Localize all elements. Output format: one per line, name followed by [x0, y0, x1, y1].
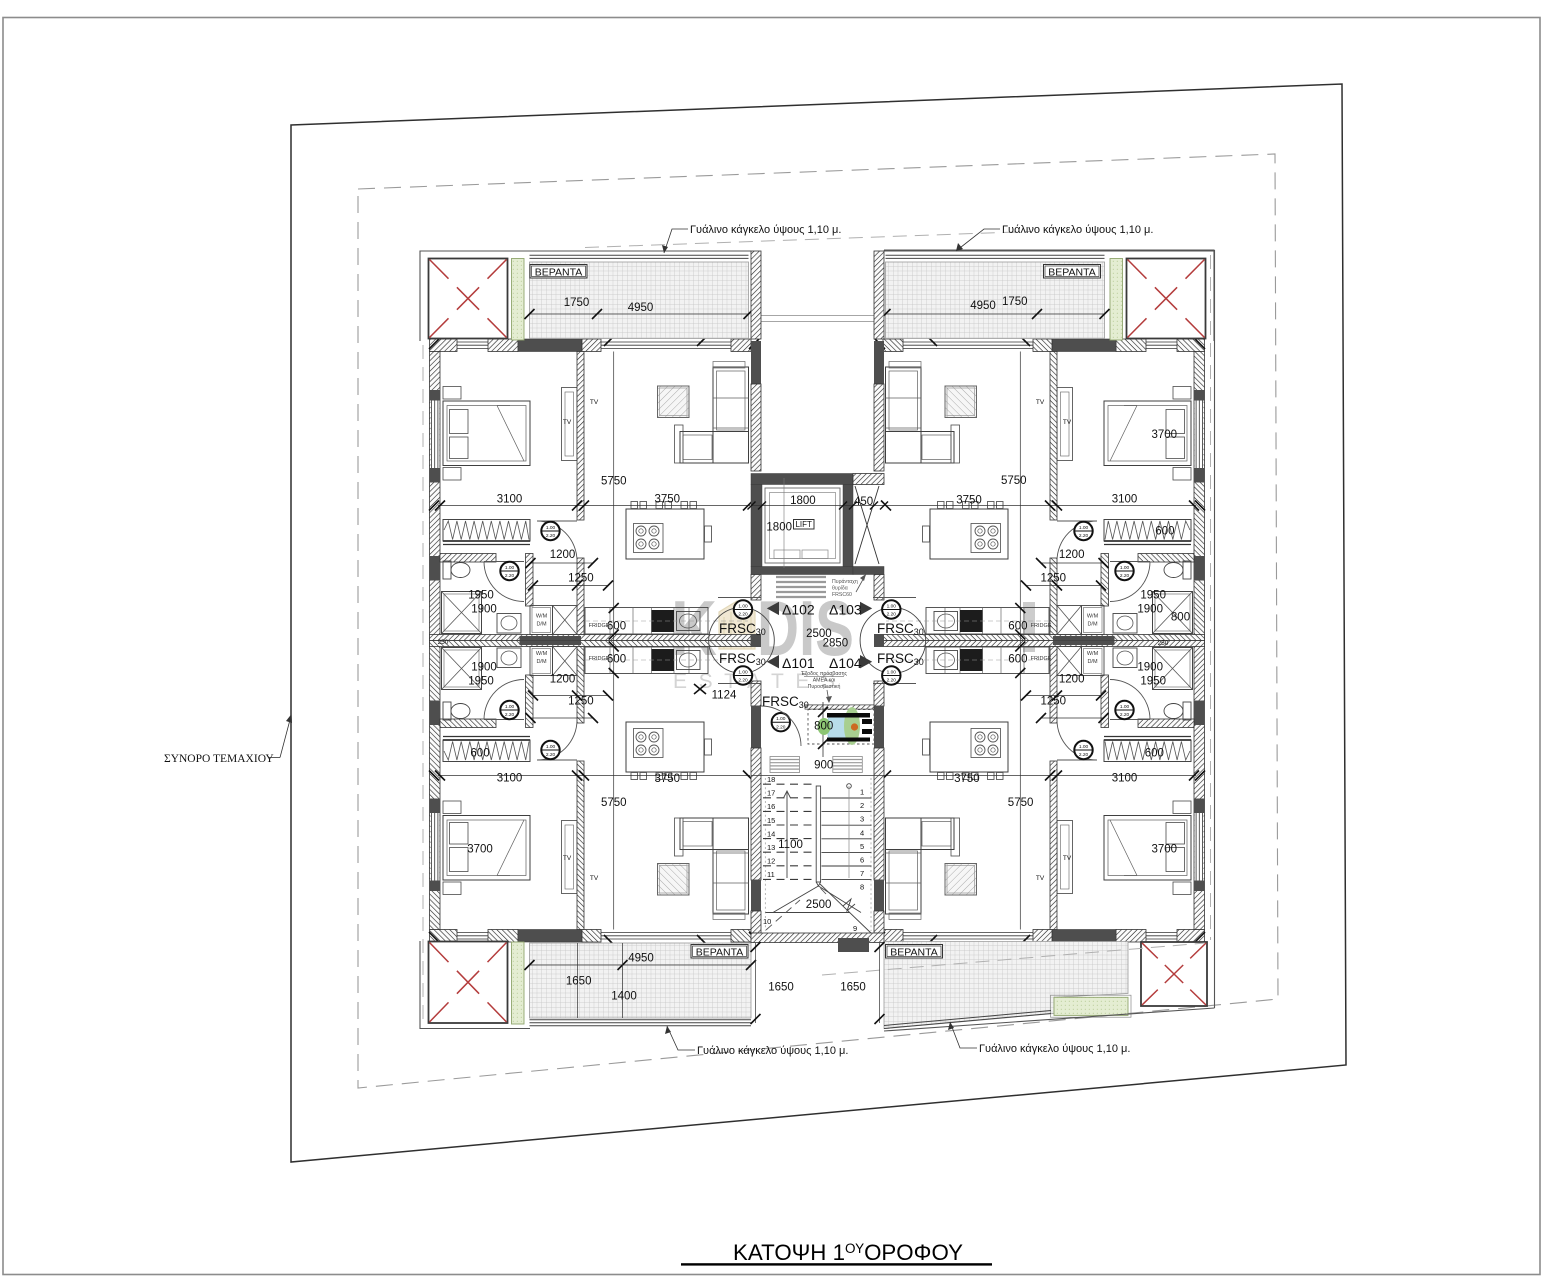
svg-text:3700: 3700: [1152, 429, 1178, 441]
svg-text:1900: 1900: [1137, 662, 1163, 674]
svg-text:2.20: 2.20: [1120, 573, 1130, 579]
svg-text:3100: 3100: [1112, 773, 1138, 785]
svg-text:1250: 1250: [1041, 573, 1067, 585]
svg-text:W/M: W/M: [536, 614, 548, 620]
svg-text:13: 13: [767, 843, 775, 852]
svg-text:4950: 4950: [970, 300, 996, 312]
svg-text:1200: 1200: [1059, 549, 1085, 561]
svg-text:2: 2: [860, 801, 864, 810]
svg-text:FRIDGE: FRIDGE: [589, 656, 610, 662]
svg-text:ΒΕΡΑΝΤΑ: ΒΕΡΑΝΤΑ: [890, 947, 937, 959]
svg-text:2850: 2850: [823, 638, 849, 650]
svg-text:Δ103: Δ103: [829, 602, 862, 618]
svg-text:1200: 1200: [550, 549, 576, 561]
svg-text:W/M: W/M: [1087, 614, 1099, 620]
svg-text:2500: 2500: [806, 899, 832, 911]
svg-text:9: 9: [853, 924, 857, 933]
svg-text:D/M: D/M: [536, 622, 547, 628]
svg-text:600: 600: [1008, 621, 1027, 633]
svg-text:ΒΕΡΑΝΤΑ: ΒΕΡΑΝΤΑ: [1048, 267, 1095, 279]
svg-text:250: 250: [438, 639, 449, 646]
svg-text:2.20: 2.20: [1079, 533, 1089, 539]
svg-text:800: 800: [814, 721, 833, 733]
svg-text:2.20: 2.20: [738, 612, 748, 618]
svg-text:2.20: 2.20: [505, 712, 515, 718]
svg-text:FRIDGE: FRIDGE: [1031, 656, 1052, 662]
svg-text:600: 600: [1008, 654, 1027, 666]
svg-text:TV: TV: [1036, 875, 1045, 882]
svg-text:1950: 1950: [468, 590, 494, 602]
svg-text:2.20: 2.20: [546, 752, 556, 758]
svg-text:5750: 5750: [601, 476, 627, 488]
svg-text:2.20: 2.20: [1079, 752, 1089, 758]
svg-text:16: 16: [767, 802, 775, 811]
svg-text:TV: TV: [1063, 419, 1072, 426]
svg-text:1950: 1950: [1140, 590, 1166, 602]
svg-text:1.00: 1.00: [505, 704, 515, 710]
svg-text:10: 10: [763, 917, 771, 926]
svg-text:Δ101: Δ101: [782, 655, 815, 671]
svg-text:D/M: D/M: [1087, 659, 1098, 665]
svg-text:1750: 1750: [564, 297, 590, 309]
svg-text:4: 4: [860, 828, 864, 837]
svg-text:2.20: 2.20: [1120, 712, 1130, 718]
svg-text:Πυράνταχη: Πυράνταχη: [832, 578, 858, 585]
svg-text:5: 5: [860, 842, 864, 851]
svg-text:4950: 4950: [628, 302, 654, 314]
svg-text:1200: 1200: [1059, 674, 1085, 686]
svg-text:450: 450: [854, 496, 873, 508]
svg-text:TV: TV: [563, 855, 572, 862]
svg-text:1124: 1124: [712, 690, 737, 702]
svg-text:3750: 3750: [655, 773, 681, 785]
svg-text:3700: 3700: [467, 844, 493, 856]
svg-text:800: 800: [1171, 612, 1190, 624]
svg-text:1.00: 1.00: [738, 603, 748, 609]
svg-text:1.00: 1.00: [776, 716, 786, 722]
svg-text:FRIDGE: FRIDGE: [589, 623, 610, 629]
svg-text:1.00: 1.00: [1120, 704, 1130, 710]
svg-text:1800: 1800: [790, 495, 816, 507]
svg-text:14: 14: [767, 829, 775, 838]
svg-text:D/M: D/M: [536, 659, 547, 665]
svg-text:2.20: 2.20: [546, 533, 556, 539]
svg-text:5750: 5750: [601, 797, 627, 809]
svg-text:1250: 1250: [568, 696, 594, 708]
svg-text:Γυάλινο κάγκελο ύψους 1,10 μ.: Γυάλινο κάγκελο ύψους 1,10 μ.: [979, 1043, 1130, 1055]
svg-text:1650: 1650: [566, 976, 592, 988]
svg-text:ΒΕΡΑΝΤΑ: ΒΕΡΑΝΤΑ: [535, 267, 582, 279]
svg-text:2.20: 2.20: [738, 678, 748, 684]
svg-text:Γυάλινο κάγκελο ύψους 1,10 μ.: Γυάλινο κάγκελο ύψους 1,10 μ.: [690, 224, 841, 236]
svg-text:3100: 3100: [497, 773, 523, 785]
svg-text:1.00: 1.00: [887, 669, 897, 675]
svg-text:1: 1: [860, 788, 864, 797]
svg-text:1400: 1400: [611, 991, 637, 1003]
svg-text:TV: TV: [590, 399, 599, 406]
svg-text:2.20: 2.20: [505, 573, 515, 579]
svg-text:3100: 3100: [497, 494, 523, 506]
svg-text:1900: 1900: [471, 604, 497, 616]
svg-text:1200: 1200: [550, 674, 576, 686]
svg-text:1750: 1750: [1002, 296, 1028, 308]
svg-text:18: 18: [767, 775, 775, 784]
svg-text:7: 7: [860, 869, 864, 878]
svg-text:K: K: [671, 584, 717, 672]
svg-text:1950: 1950: [1140, 676, 1166, 688]
svg-text:1900: 1900: [1137, 604, 1163, 616]
svg-text:600: 600: [1145, 748, 1164, 760]
svg-text:5750: 5750: [1001, 475, 1027, 487]
svg-text:1.00: 1.00: [1079, 744, 1089, 750]
svg-text:600: 600: [470, 748, 489, 760]
svg-text:1650: 1650: [840, 982, 866, 994]
svg-text:1100: 1100: [778, 839, 803, 851]
svg-text:D/M: D/M: [1087, 622, 1098, 628]
svg-text:Γυάλινο κάγκελο ύψους 1,10 μ.: Γυάλινο κάγκελο ύψους 1,10 μ.: [697, 1045, 848, 1057]
svg-text:Δ104: Δ104: [829, 655, 862, 671]
svg-text:TV: TV: [590, 875, 599, 882]
svg-text:1.00: 1.00: [1079, 525, 1089, 531]
svg-text:FRSC60: FRSC60: [832, 592, 852, 598]
svg-text:LIFT: LIFT: [795, 520, 812, 529]
svg-text:W/M: W/M: [1087, 651, 1099, 657]
svg-text:Πυροσβεστική: Πυροσβεστική: [808, 683, 841, 690]
svg-text:250: 250: [1158, 640, 1169, 647]
svg-text:1.00: 1.00: [546, 744, 556, 750]
svg-text:1.00: 1.00: [738, 669, 748, 675]
svg-text:6: 6: [860, 856, 864, 865]
svg-text:1650: 1650: [768, 982, 794, 994]
svg-text:Γυάλινο κάγκελο ύψους 1,10 μ.: Γυάλινο κάγκελο ύψους 1,10 μ.: [1002, 224, 1153, 236]
svg-text:3100: 3100: [1112, 494, 1138, 506]
svg-text:W/M: W/M: [536, 651, 548, 657]
svg-text:600: 600: [607, 654, 626, 666]
svg-text:900: 900: [814, 760, 833, 772]
svg-text:Έξοδος πρόσβασης: Έξοδος πρόσβασης: [800, 670, 848, 677]
svg-text:1.00: 1.00: [505, 565, 515, 571]
svg-text:2.20: 2.20: [887, 612, 897, 618]
svg-text:TV: TV: [1063, 855, 1072, 862]
svg-text:3750: 3750: [954, 773, 980, 785]
svg-text:1.00: 1.00: [887, 603, 897, 609]
svg-text:ΑΜΕΑ και: ΑΜΕΑ και: [813, 677, 836, 683]
svg-text:3700: 3700: [1152, 844, 1178, 856]
svg-text:FRIDGE: FRIDGE: [1031, 623, 1052, 629]
svg-text:5750: 5750: [1008, 797, 1034, 809]
svg-text:Δ102: Δ102: [782, 602, 815, 618]
svg-text:TV: TV: [563, 419, 572, 426]
svg-text:1950: 1950: [468, 676, 494, 688]
svg-text:θυρίδα: θυρίδα: [832, 585, 848, 591]
svg-text:TV: TV: [1036, 399, 1045, 406]
svg-text:600: 600: [1155, 526, 1174, 538]
svg-text:600: 600: [607, 621, 626, 633]
svg-text:4950: 4950: [628, 953, 654, 965]
svg-text:3750: 3750: [655, 494, 681, 506]
svg-text:1.00: 1.00: [546, 525, 556, 531]
svg-text:3: 3: [860, 815, 864, 824]
svg-text:12: 12: [767, 857, 775, 866]
svg-text:1250: 1250: [568, 573, 594, 585]
svg-text:3750: 3750: [956, 495, 982, 507]
svg-text:11: 11: [767, 870, 775, 879]
svg-text:1250: 1250: [1041, 696, 1067, 708]
svg-text:17: 17: [767, 789, 775, 798]
svg-text:2.20: 2.20: [776, 724, 786, 730]
svg-text:2.20: 2.20: [887, 678, 897, 684]
svg-text:8: 8: [860, 883, 864, 892]
svg-text:1.00: 1.00: [1120, 565, 1130, 571]
svg-text:ΒΕΡΑΝΤΑ: ΒΕΡΑΝΤΑ: [696, 947, 743, 959]
svg-text:15: 15: [767, 816, 775, 825]
svg-text:1900: 1900: [471, 662, 497, 674]
svg-text:1800: 1800: [766, 522, 792, 534]
svg-text:ΣΥΝΟΡΟ ΤΕΜΑΧΙΟΥ: ΣΥΝΟΡΟ ΤΕΜΑΧΙΟΥ: [164, 753, 274, 765]
